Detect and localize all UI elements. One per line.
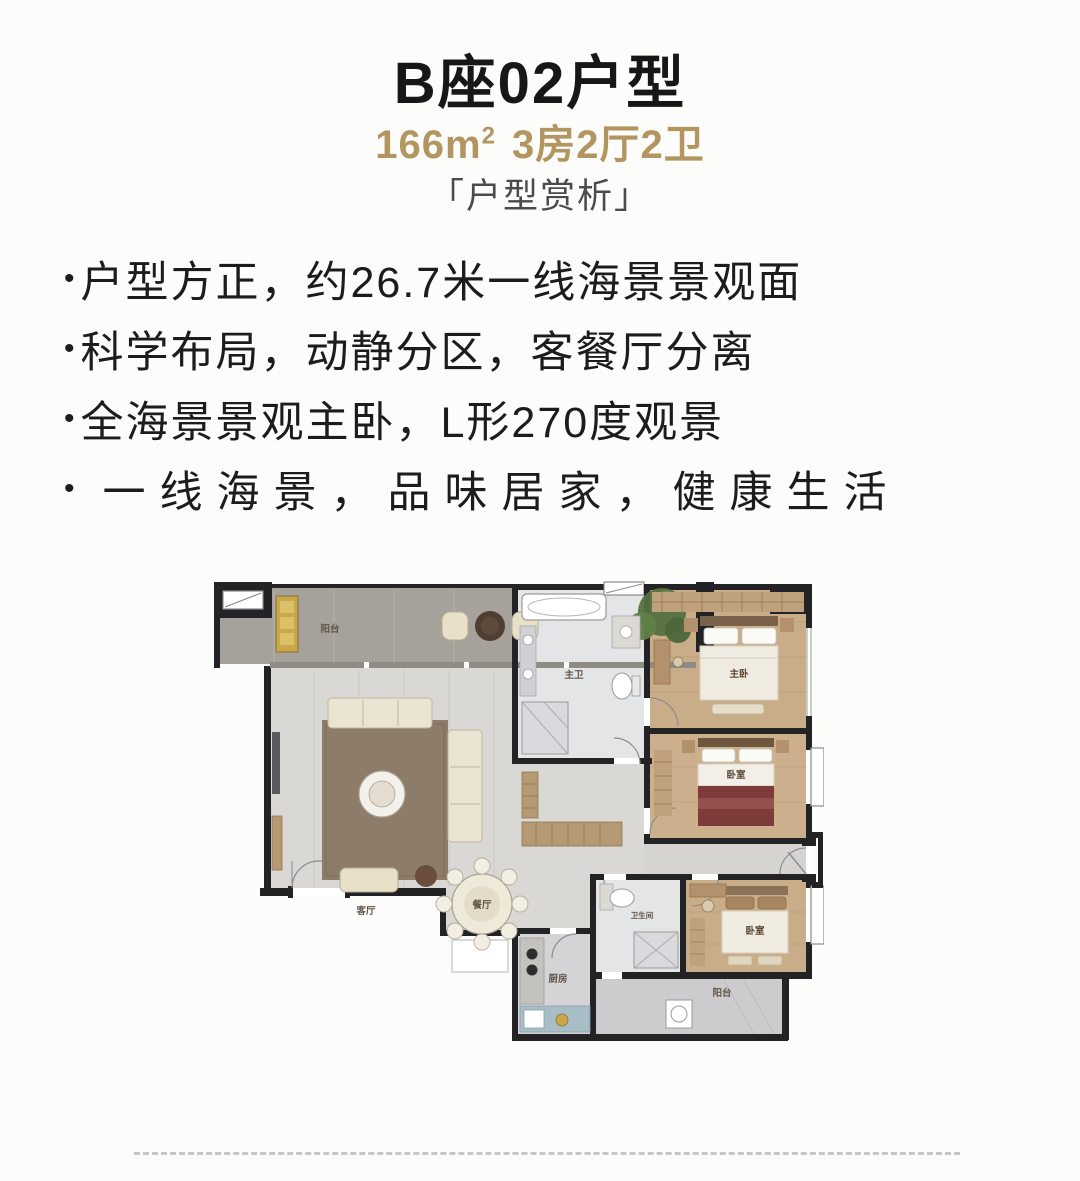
chair-icon <box>702 900 714 912</box>
toilet-icon <box>610 889 634 907</box>
page-title: B座02户型 <box>0 36 1080 120</box>
sofa-icon <box>328 698 432 728</box>
stove-icon <box>527 965 538 976</box>
nightstand-icon <box>684 618 698 632</box>
washer-icon <box>666 1000 692 1028</box>
nightstand-icon <box>776 740 789 753</box>
unit-spec: 166m23房2厅2卫 <box>0 112 1080 170</box>
floorplan-svg: 阳台 客厅 餐厅 主卫 主卧 卧室 卧室 厨房 卫生间 阳台 <box>206 574 824 1054</box>
bed-headboard <box>722 886 788 895</box>
toilet-icon <box>612 673 632 699</box>
desk-icon <box>690 884 726 897</box>
selling-point-text: 一线海景，品味居家，健康生活 <box>103 458 901 520</box>
selling-points-list: • 户型方正，约26.7米一线海景景观面 • 科学布局，动静分区，客餐厅分离 •… <box>64 244 1054 524</box>
unit-area-sup: 2 <box>482 123 496 150</box>
label-bedroom3: 卧室 <box>745 925 765 937</box>
selling-point: • 全海景景观主卧，L形270度观景 <box>64 384 1054 454</box>
pillow-icon <box>726 897 754 909</box>
label-master-bath: 主卫 <box>564 669 584 681</box>
selling-point-text: 户型方正，约26.7米一线海景景观面 <box>81 248 803 310</box>
stove-icon <box>527 949 538 960</box>
label-living: 客厅 <box>355 905 376 917</box>
unit-rooms: 3房2厅2卫 <box>512 123 705 167</box>
bullet-icon: • <box>64 332 77 366</box>
bullet-icon: • <box>64 472 89 506</box>
pillow-icon <box>739 749 772 762</box>
balcony-chair <box>442 612 468 640</box>
dashed-divider <box>134 1152 960 1155</box>
selling-point: • 户型方正，约26.7米一线海景景观面 <box>64 244 1054 314</box>
label-master-bedroom: 主卧 <box>729 668 749 680</box>
nightstand-icon <box>780 618 794 632</box>
bed-headboard <box>700 616 778 626</box>
tv-console <box>272 732 280 794</box>
label-balcony: 阳台 <box>320 623 340 635</box>
section-label: 「户型赏析」 <box>0 168 1080 219</box>
floorplan-image: 阳台 客厅 餐厅 主卫 主卧 卧室 卧室 厨房 卫生间 阳台 <box>206 574 824 1054</box>
pillow-icon <box>758 897 786 909</box>
label-dining: 餐厅 <box>471 899 492 911</box>
sofa-icon <box>448 730 482 842</box>
bullet-icon: • <box>64 262 77 296</box>
selling-point: • 科学布局，动静分区，客餐厅分离 <box>64 314 1054 384</box>
nightstand-icon <box>682 740 695 753</box>
bullet-icon: • <box>64 402 77 436</box>
utility-fixtures <box>666 1000 692 1028</box>
label-utility-balcony: 阳台 <box>712 987 732 999</box>
selling-point: • 一线海景，品味居家，健康生活 <box>64 454 1054 524</box>
label-kitchen: 厨房 <box>548 973 567 985</box>
bed-bench <box>758 956 782 965</box>
dresser-icon <box>654 640 670 684</box>
storage-cabinet <box>522 772 538 818</box>
sink-icon <box>524 1010 544 1028</box>
selling-point-text: 科学布局，动静分区，客餐厅分离 <box>81 318 756 380</box>
bed-bench <box>728 956 752 965</box>
unit-area: 166m <box>375 123 481 167</box>
chaise-icon <box>340 868 398 892</box>
pouf-icon <box>415 865 437 887</box>
label-bedroom2: 卧室 <box>726 769 746 781</box>
pillow-icon <box>702 749 735 762</box>
label-bath2: 卫生间 <box>631 910 654 920</box>
wardrobe-icon <box>654 750 672 816</box>
pillow-icon <box>704 628 738 644</box>
side-cabinet <box>272 816 282 870</box>
bed-headboard <box>698 738 774 747</box>
pillow-icon <box>742 628 776 644</box>
selling-point-text: 全海景景观主卧，L形270度观景 <box>81 388 725 450</box>
storage-cabinet <box>522 822 622 846</box>
bed-bench <box>712 704 764 714</box>
